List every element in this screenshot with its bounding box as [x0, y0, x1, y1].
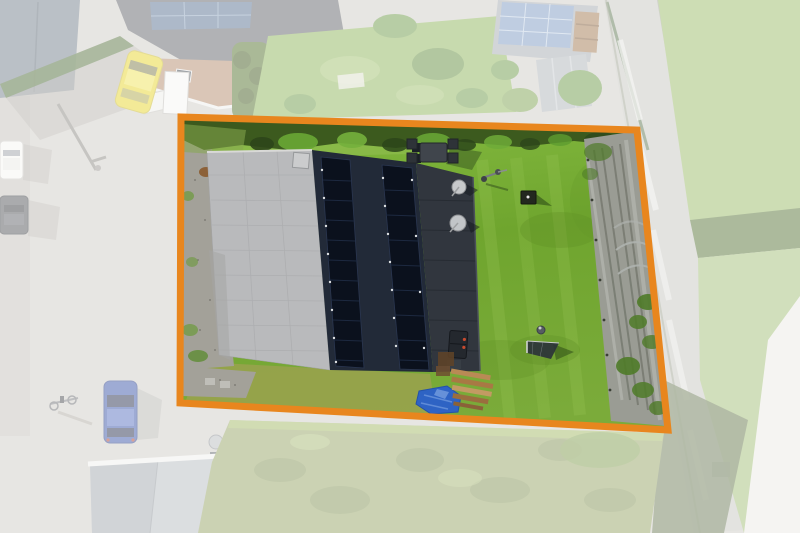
- wood-crate: [438, 352, 454, 366]
- football: [537, 326, 545, 334]
- property: [170, 108, 680, 443]
- weeds: [186, 257, 198, 267]
- patio-table: [420, 143, 447, 162]
- weeds: [182, 324, 198, 336]
- patio-chair: [448, 139, 458, 149]
- aerial-photo: [0, 0, 800, 533]
- patio-chair: [448, 153, 458, 163]
- aerial-photo-canvas: [0, 0, 800, 533]
- stepping-stone: [220, 381, 230, 388]
- main-house: [207, 150, 433, 372]
- weeds: [188, 350, 208, 362]
- stepping-stone: [205, 378, 215, 385]
- roof-vent: [292, 152, 309, 168]
- patio-chair: [407, 139, 417, 149]
- patio-chair: [407, 153, 417, 163]
- wood-crate: [436, 366, 450, 376]
